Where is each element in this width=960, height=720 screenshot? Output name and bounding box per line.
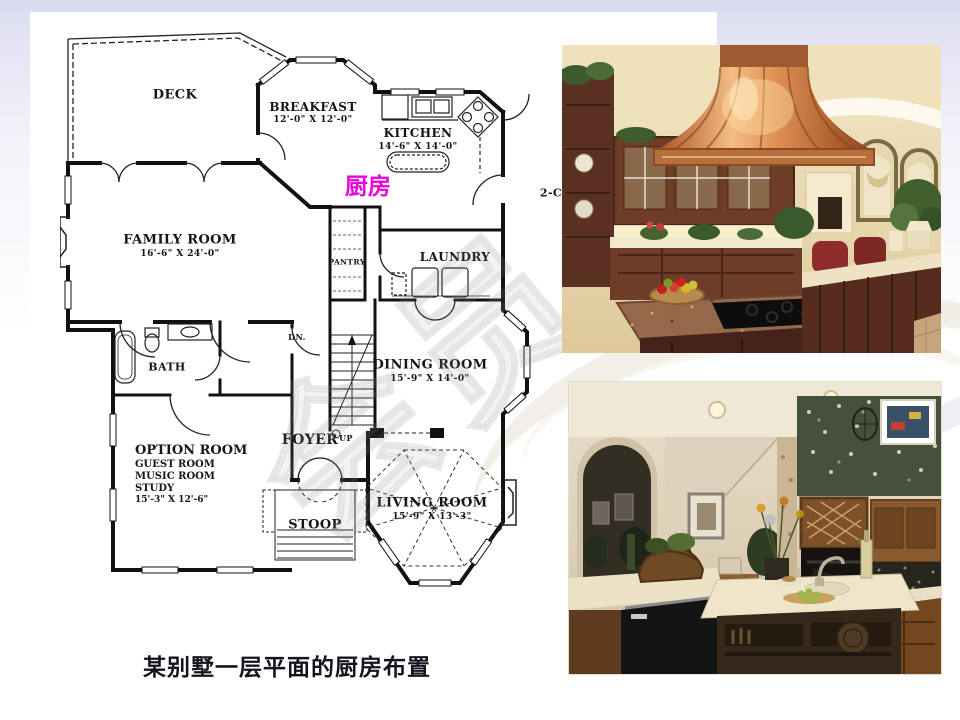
- room-label-dining-room: DINING ROOM: [372, 358, 487, 373]
- room-label-kitchen: KITCHEN: [384, 126, 453, 140]
- kitchen-highlight-label: 厨房: [345, 167, 391, 201]
- option-room-sub1: GUEST ROOM: [135, 459, 247, 471]
- slide-caption: 某别墅一层平面的厨房布置: [143, 648, 431, 682]
- room-dims-kitchen: 14'-6" X 14'-0": [378, 142, 457, 152]
- room-dims-dining-room: 15'-9" X 14'-0": [390, 374, 469, 384]
- staircase: [331, 335, 374, 438]
- kitchen-photo-2-art: [569, 382, 941, 674]
- stair-label-up: UP: [339, 433, 353, 443]
- room-label-breakfast: BREAKFAST: [269, 100, 356, 114]
- exterior-door-swings: [298, 480, 342, 502]
- kitchen-photo-2: [569, 382, 941, 674]
- room-label-family-room: FAMILY ROOM: [123, 233, 236, 248]
- garage-partial-label: 2-C: [540, 187, 562, 200]
- room-label-living-room: LIVING ROOM: [376, 496, 487, 511]
- laundry-fittings: [392, 268, 490, 297]
- stair-label-down: DN.: [288, 332, 306, 342]
- room-label-pantry: PANTRY: [328, 258, 365, 267]
- room-label-bath: BATH: [148, 361, 185, 374]
- room-label-option-room: OPTION ROOM GUEST ROOM MUSIC ROOM STUDY …: [135, 443, 247, 505]
- bath-fixtures: [115, 324, 212, 383]
- room-dims-living-room: 15'-9" X 13'-3": [392, 512, 471, 522]
- option-room-sub2: MUSIC ROOM: [135, 471, 247, 483]
- room-dims-family-room: 16'-6" X 24'-0": [140, 249, 219, 259]
- room-label-deck: DECK: [153, 88, 197, 103]
- option-room-title: OPTION ROOM: [135, 443, 247, 459]
- kitchen-photo-1-art: [562, 45, 941, 353]
- room-dims-breakfast: 12'-0" X 12'-0": [273, 115, 352, 125]
- kitchen-photo-1: [562, 45, 941, 353]
- room-label-foyer: FOYER: [282, 432, 338, 448]
- option-room-dims: 15'-3" X 12'-6": [135, 495, 247, 506]
- pantry-shelves: [333, 221, 362, 291]
- room-label-stoop: STOOP: [288, 518, 342, 533]
- stair-arrow: [348, 335, 356, 345]
- option-room-sub3: STUDY: [135, 483, 247, 495]
- presentation-slide: DECK BREAKFAST 12'-0" X 12'-0" KITCHEN 1…: [0, 0, 960, 720]
- door-arcs: [100, 94, 529, 480]
- room-label-laundry: LAUNDRY: [420, 250, 491, 264]
